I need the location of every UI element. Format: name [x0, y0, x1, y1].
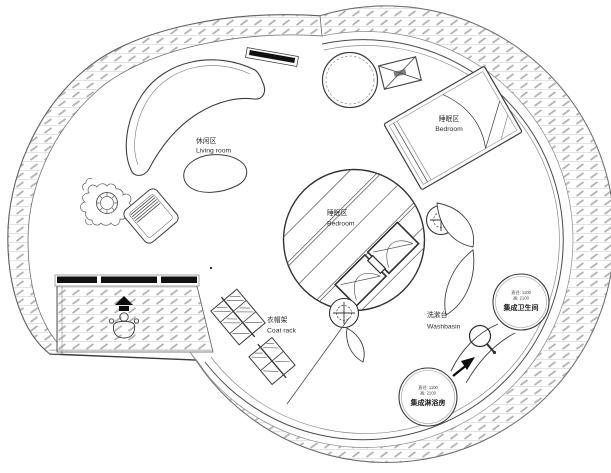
toilet-pod-name: 集成卫生间 [503, 303, 539, 312]
toilet-pod: 直径: 1100 高: 2100 集成卫生间 [493, 274, 549, 330]
living-room-label-zh: 休闲区 [196, 136, 217, 145]
round-table [323, 53, 378, 108]
bedroom-main-label-zh: 睡眠区 [327, 209, 348, 217]
plan-dot [210, 267, 212, 269]
toilet-pod-dim1: 直径: 1100 [511, 289, 531, 295]
shower-pod-name: 集成淋浴房 [410, 398, 446, 407]
entrance-corridor [50, 275, 213, 352]
toilet-pod-dim2: 高: 2100 [513, 295, 530, 302]
shower-pod: 直径: 1100 高: 2100 集成淋浴房 [399, 368, 457, 426]
living-room-label-en: Living room [196, 148, 231, 155]
shower-pod-dim2: 高: 2100 [420, 390, 437, 397]
coat-rack-label-zh: 衣帽架 [267, 315, 288, 324]
washbasin-label-zh: 洗漱台 [427, 310, 448, 319]
entrance-wall-band [55, 275, 199, 286]
bedroom-main-label-en: Bedroom [327, 221, 355, 228]
coat-rack-label-en: Coat rack [267, 328, 297, 335]
washbasin-label-en: Washbasin [427, 324, 461, 331]
bedroom-loft-label-zh: 睡眠区 [439, 115, 460, 123]
floor-plan-page: 直径: 1100 高: 2100 集成卫生间 直径: 1100 高: 2100 … [0, 0, 611, 473]
bedroom-loft-label-en: Bedroom [435, 126, 463, 133]
shower-pod-dim1: 直径: 1100 [418, 384, 438, 390]
column-symbol-bottom [330, 299, 359, 328]
floor-plan-drawing: 直径: 1100 高: 2100 集成卫生间 直径: 1100 高: 2100 … [0, 0, 611, 473]
